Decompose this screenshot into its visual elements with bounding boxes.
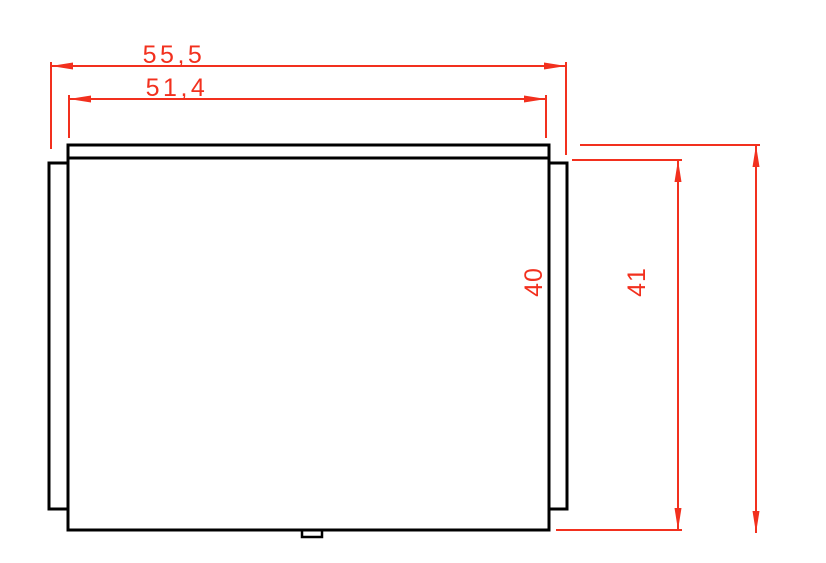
part-left-flange [49,163,68,509]
arrow-left-icon [51,63,73,70]
part-body-outline [68,145,549,530]
arrow-right-icon [524,96,546,103]
dimension-inner-width: 51,4 [69,74,546,138]
arrow-up-icon [753,145,760,167]
cad-drawing: 55,5 51,4 40 41 [0,0,826,563]
arrow-left-icon [69,96,91,103]
dimension-outer-height: 41 [580,145,760,533]
part-front-view [49,145,567,537]
arrow-right-icon [544,63,566,70]
dim-inner-height-label: 40 [520,267,548,297]
dim-inner-width-label: 51,4 [146,74,209,102]
arrow-down-icon [753,511,760,533]
dim-outer-width-label: 55,5 [143,41,206,69]
arrow-down-icon [675,508,682,530]
arrow-up-icon [675,160,682,182]
technical-drawing-canvas: 55,5 51,4 40 41 [0,0,826,563]
dimension-inner-height: 40 [520,160,682,530]
dim-outer-height-label: 41 [623,267,651,297]
part-right-flange [549,163,567,509]
part-bottom-notch [302,531,322,537]
